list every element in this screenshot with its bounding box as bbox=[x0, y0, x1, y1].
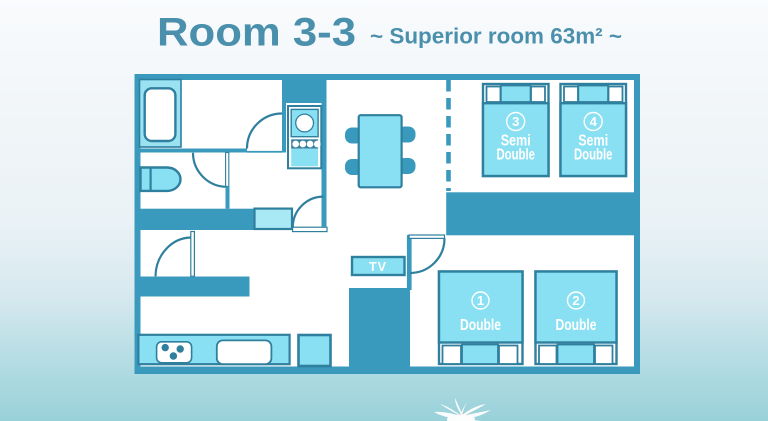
svg-text:~ Superior room 63m² ~: ~ Superior room 63m² ~ bbox=[370, 24, 622, 49]
svg-text:2: 2 bbox=[572, 293, 579, 308]
svg-text:Double: Double bbox=[496, 147, 535, 164]
svg-text:4: 4 bbox=[590, 114, 598, 129]
svg-text:Double: Double bbox=[460, 317, 501, 334]
svg-text:1: 1 bbox=[477, 293, 484, 308]
svg-text:Double: Double bbox=[574, 147, 613, 164]
svg-text:3: 3 bbox=[512, 114, 519, 129]
svg-text:Double: Double bbox=[556, 317, 597, 334]
svg-text:Room 3-3: Room 3-3 bbox=[157, 11, 356, 55]
svg-text:TV: TV bbox=[369, 260, 387, 274]
